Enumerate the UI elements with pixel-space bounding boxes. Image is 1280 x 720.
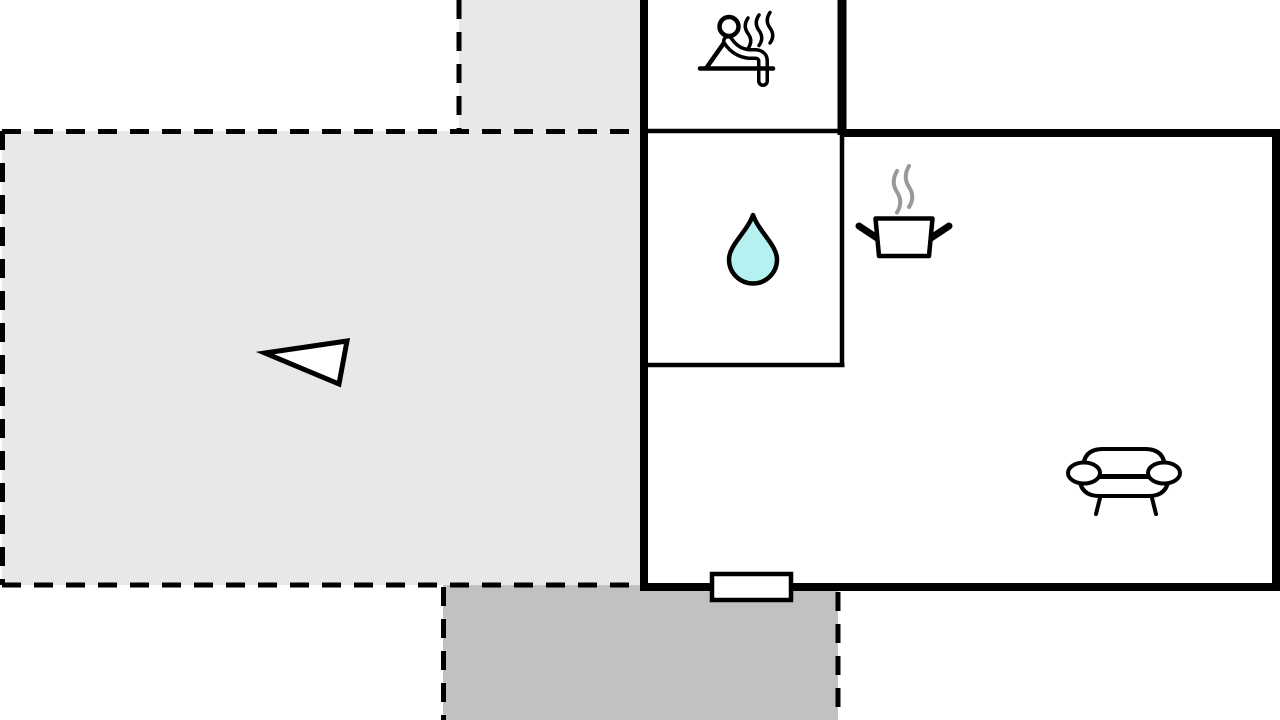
floor-plan [0, 0, 1280, 720]
sofa-armrest-left [1068, 463, 1100, 484]
lower-patio-region [443, 585, 838, 720]
entrance-door [712, 574, 791, 600]
pot-body [876, 219, 933, 257]
person-head [720, 17, 739, 36]
floor-plan-canvas [0, 0, 1280, 720]
upper-terrace-region [459, 0, 644, 132]
main-room-floor [644, 131, 1276, 587]
sofa-armrest-right [1148, 463, 1180, 484]
